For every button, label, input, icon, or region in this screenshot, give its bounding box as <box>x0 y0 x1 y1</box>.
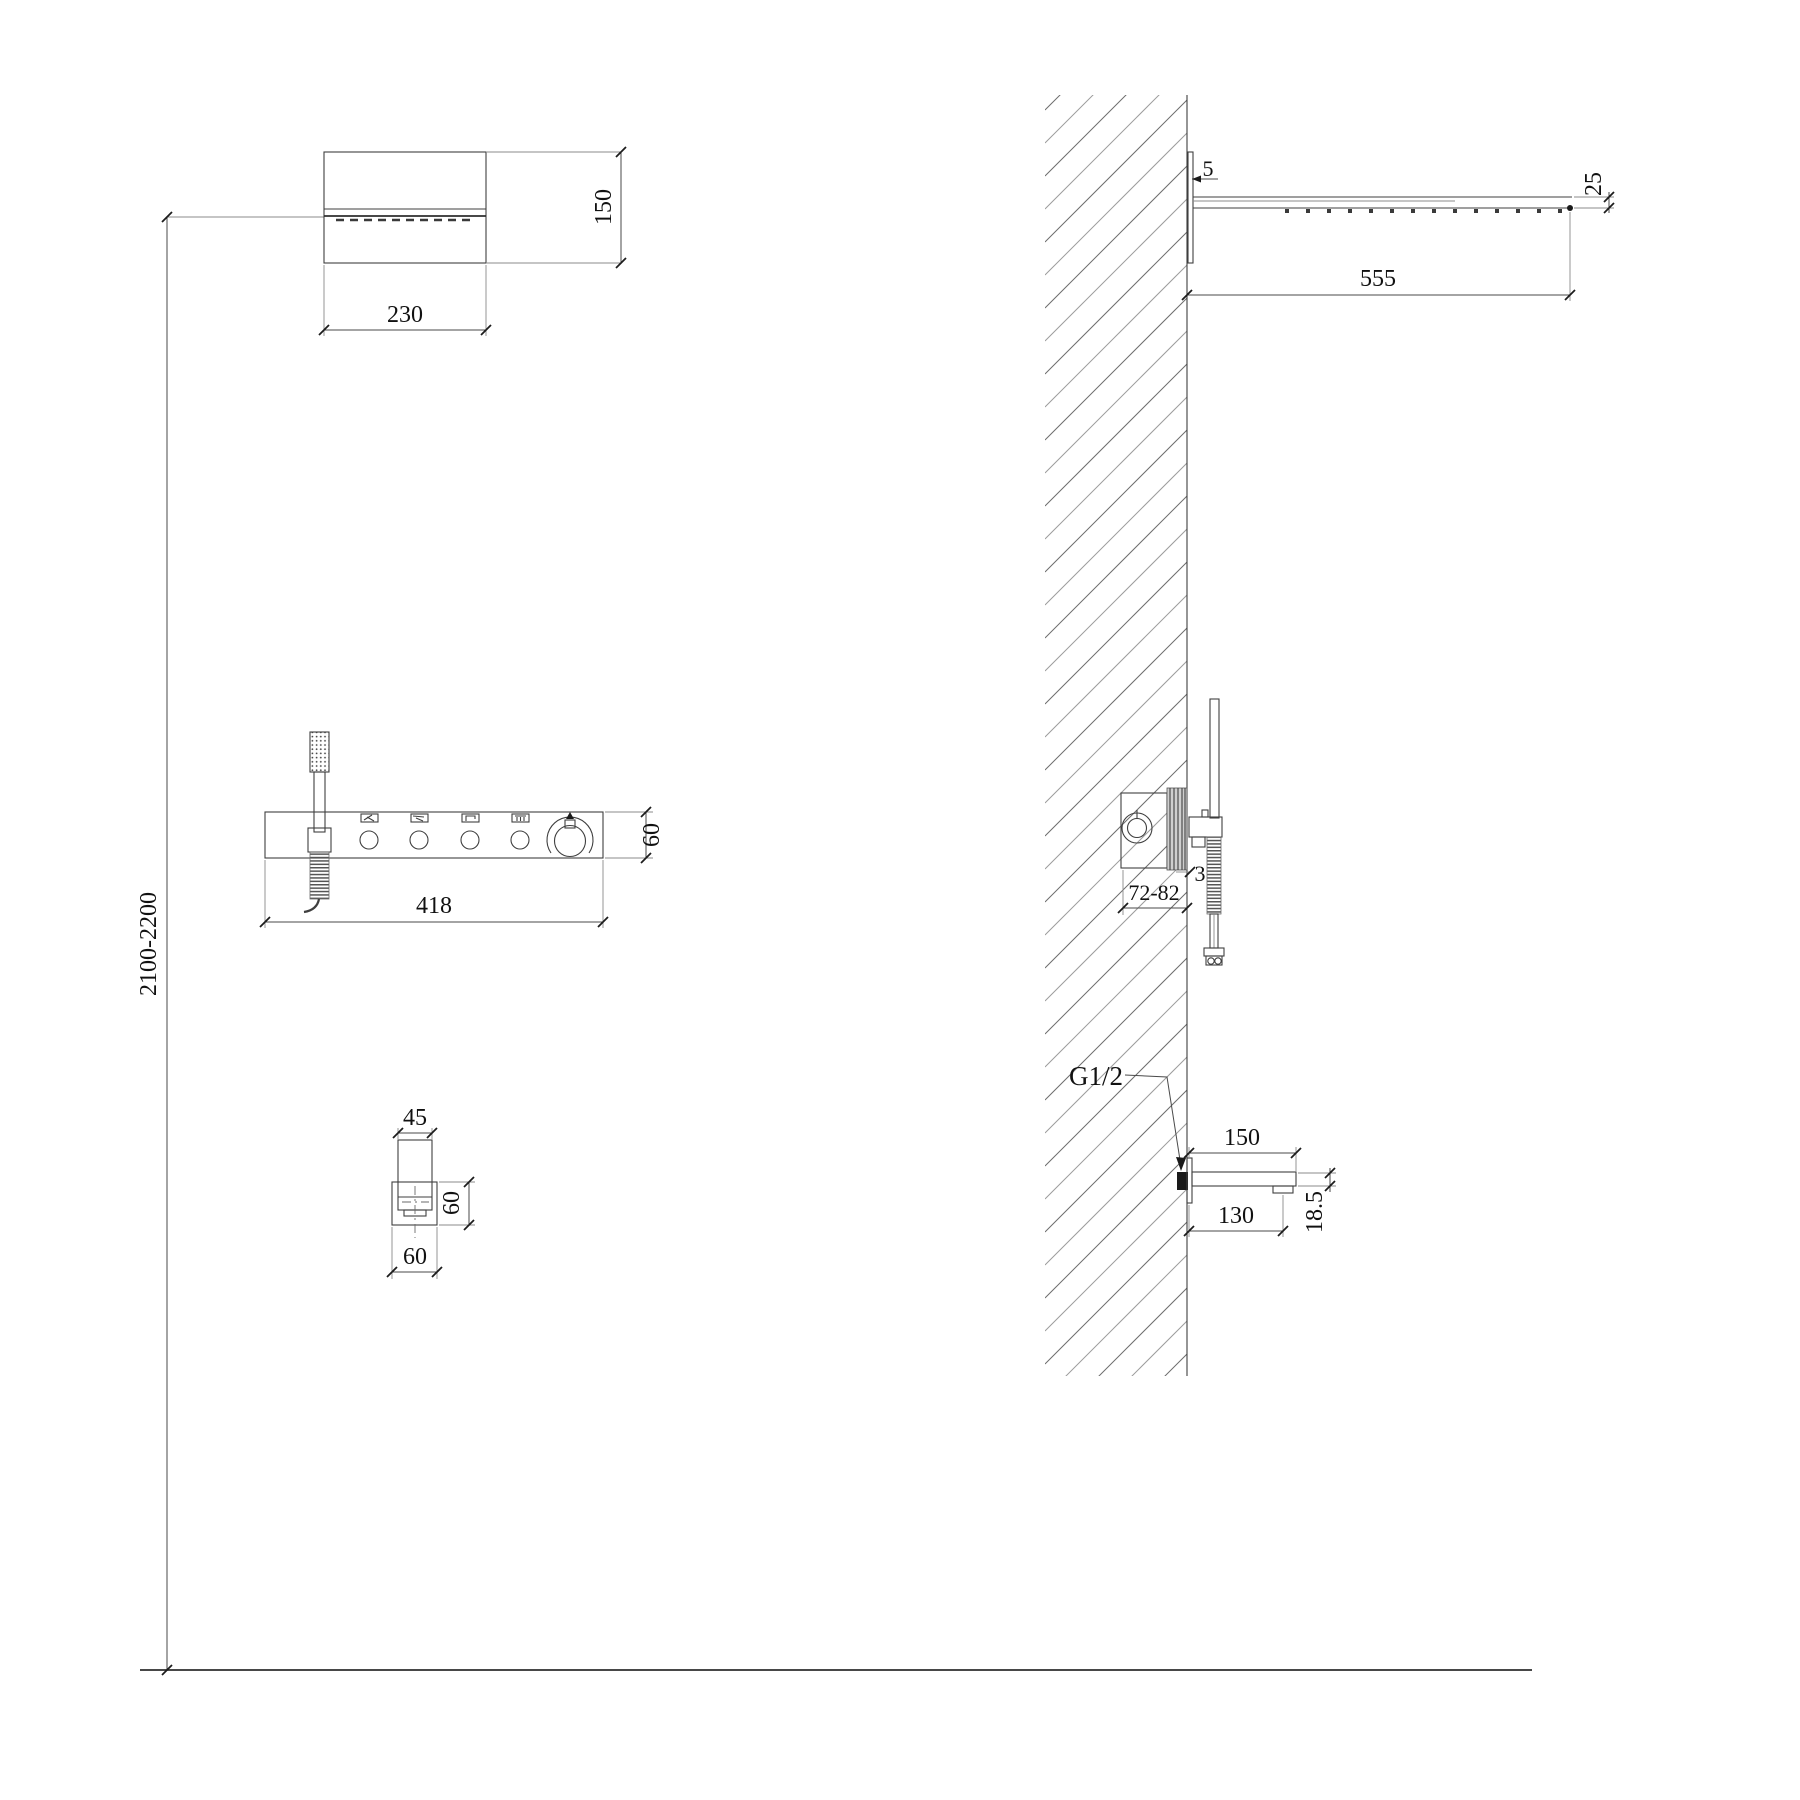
spout-tip-label: 18.5 <box>1302 1191 1328 1233</box>
head-front-view: 150 230 <box>319 147 626 336</box>
mode-icon-waterfall <box>411 814 428 822</box>
head-plate-label: 5 <box>1203 156 1214 181</box>
head-length-label: 555 <box>1360 266 1396 292</box>
head-height-label: 150 <box>591 189 617 225</box>
panel-width-label: 418 <box>416 893 452 919</box>
diverter-button-1 <box>360 831 378 849</box>
thread-leader-line <box>1125 1075 1180 1160</box>
diverter-button-4 <box>511 831 529 849</box>
spout-inlet-thread <box>1177 1172 1188 1190</box>
spout-front-depth-label: 60 <box>403 1244 427 1270</box>
head-tip-point <box>1567 205 1573 211</box>
spout-front-width-label: 45 <box>403 1105 427 1131</box>
hand-shower-hose-end <box>304 899 319 912</box>
hand-shower-head <box>310 732 329 772</box>
panel-body <box>265 812 603 858</box>
wall-section <box>1045 0 1187 1496</box>
head-front-body <box>324 152 486 263</box>
spout-body-side <box>1192 1172 1296 1186</box>
leader-arrow-icon <box>1176 1157 1186 1171</box>
technical-drawing: 2100-2200 150 230 <box>0 0 1800 1800</box>
valve-plate-label: 3 <box>1195 861 1206 886</box>
spout-bottom-label: 130 <box>1218 1203 1254 1229</box>
install-height-label: 2100-2200 <box>136 892 162 996</box>
valve-inlet-inner <box>1128 819 1147 838</box>
mode-icon-spout <box>462 814 479 822</box>
dim-install-height: 2100-2200 <box>136 212 324 1675</box>
spout-nozzle-side <box>1273 1186 1293 1193</box>
hand-shower-handle <box>314 772 325 832</box>
temperature-knob <box>547 812 593 857</box>
drawing-svg: 2100-2200 150 230 <box>0 0 1800 1800</box>
head-tip-label: 25 <box>1581 172 1607 196</box>
diverter-button-3 <box>461 831 479 849</box>
hand-shower-front <box>304 732 331 912</box>
spout-side-view: G1/2 150 130 18.5 <box>1069 1061 1336 1237</box>
hand-shower-side-bracket <box>1189 817 1222 837</box>
diverter-button-2 <box>410 831 428 849</box>
thread-label: G1/2 <box>1069 1061 1123 1091</box>
valve-side-view: 3 72-82 <box>1118 699 1224 965</box>
head-wall-plate <box>1188 152 1193 263</box>
wall-hatching <box>1045 0 1187 1496</box>
hose-spring-guard <box>1207 837 1221 914</box>
head-width-label: 230 <box>387 302 423 328</box>
spout-top-label: 150 <box>1224 1125 1260 1151</box>
head-side-view: 5 25 555 <box>1182 152 1614 301</box>
hand-shower-side-handle <box>1210 699 1219 818</box>
spout-front-height-label: 60 <box>439 1191 465 1215</box>
hose-connector-nut <box>1204 948 1224 956</box>
valve-depth-label: 72-82 <box>1128 880 1179 905</box>
knob-indicator-icon <box>566 812 574 819</box>
spout-flange-front <box>392 1182 437 1225</box>
panel-height-label: 60 <box>639 823 665 847</box>
hand-shower-hose-coil <box>310 852 329 899</box>
spout-front-view: 45 60 60 <box>387 1105 475 1279</box>
